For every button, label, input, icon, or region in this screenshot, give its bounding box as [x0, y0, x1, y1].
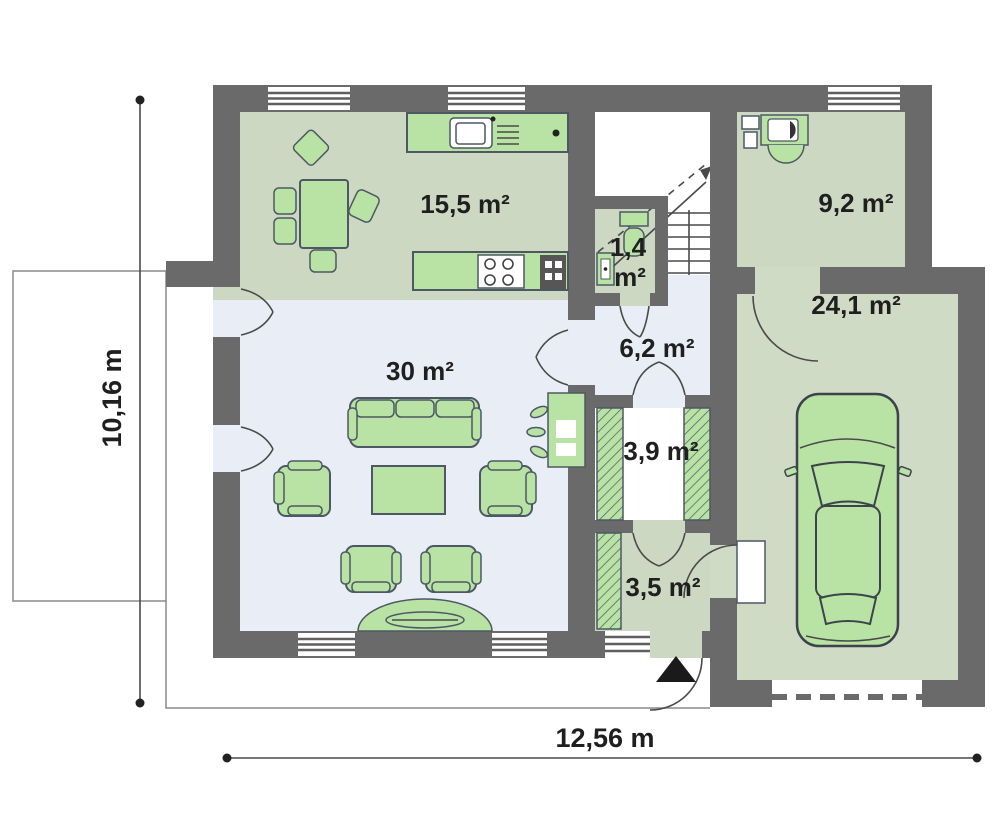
toilet: [742, 116, 759, 129]
floor-plan: 10,16 m 12,56 m 15,5 m² 30 m² 1,4 m² 6,2…: [0, 0, 1000, 822]
chair: [274, 218, 296, 244]
chair: [310, 250, 336, 272]
car-roof: [816, 506, 880, 598]
windshield: [812, 462, 884, 506]
stove: [478, 255, 524, 288]
faucet: [491, 117, 496, 122]
car: [784, 394, 911, 646]
kitchen-appliance: [540, 255, 566, 289]
room-label-wc: m²: [614, 262, 646, 292]
room-label-wc: 1,4: [610, 232, 647, 262]
entrance-steps: [605, 631, 650, 658]
chair: [274, 188, 296, 214]
window: [298, 633, 355, 656]
room-label-living: 30 m²: [386, 356, 454, 386]
room-label-utility: 9,2 m²: [818, 188, 893, 218]
armchair: [274, 461, 330, 516]
height-dimension-label: 10,16 m: [97, 348, 127, 447]
armchair: [421, 546, 481, 592]
window: [268, 87, 350, 110]
room-label-garage: 24,1 m²: [811, 290, 901, 320]
floor-plan-svg: 10,16 m 12,56 m 15,5 m² 30 m² 1,4 m² 6,2…: [0, 0, 1000, 822]
toilet: [620, 212, 648, 226]
coffee-table: [372, 466, 445, 514]
width-dimension-label: 12,56 m: [555, 723, 654, 753]
garage-entry-door-leaf: [737, 541, 765, 603]
room-label-wardrobe: 3,9 m²: [623, 436, 698, 466]
window: [828, 87, 900, 110]
rear-window: [820, 594, 876, 624]
armchair: [480, 461, 536, 516]
window: [448, 87, 525, 110]
armchair: [341, 546, 401, 592]
window: [492, 633, 547, 656]
entrance-arrow-icon: [656, 656, 696, 682]
dining-table: [300, 180, 348, 248]
wardrobe-shelf: [597, 408, 623, 520]
room-label-kitchen: 15,5 m²: [420, 189, 510, 219]
entry-shelf: [597, 533, 621, 629]
flame-icon: [527, 428, 545, 437]
room-label-hall: 6,2 m²: [619, 333, 694, 363]
sofa: [348, 398, 481, 447]
room-label-entry: 3,5 m²: [625, 572, 700, 602]
